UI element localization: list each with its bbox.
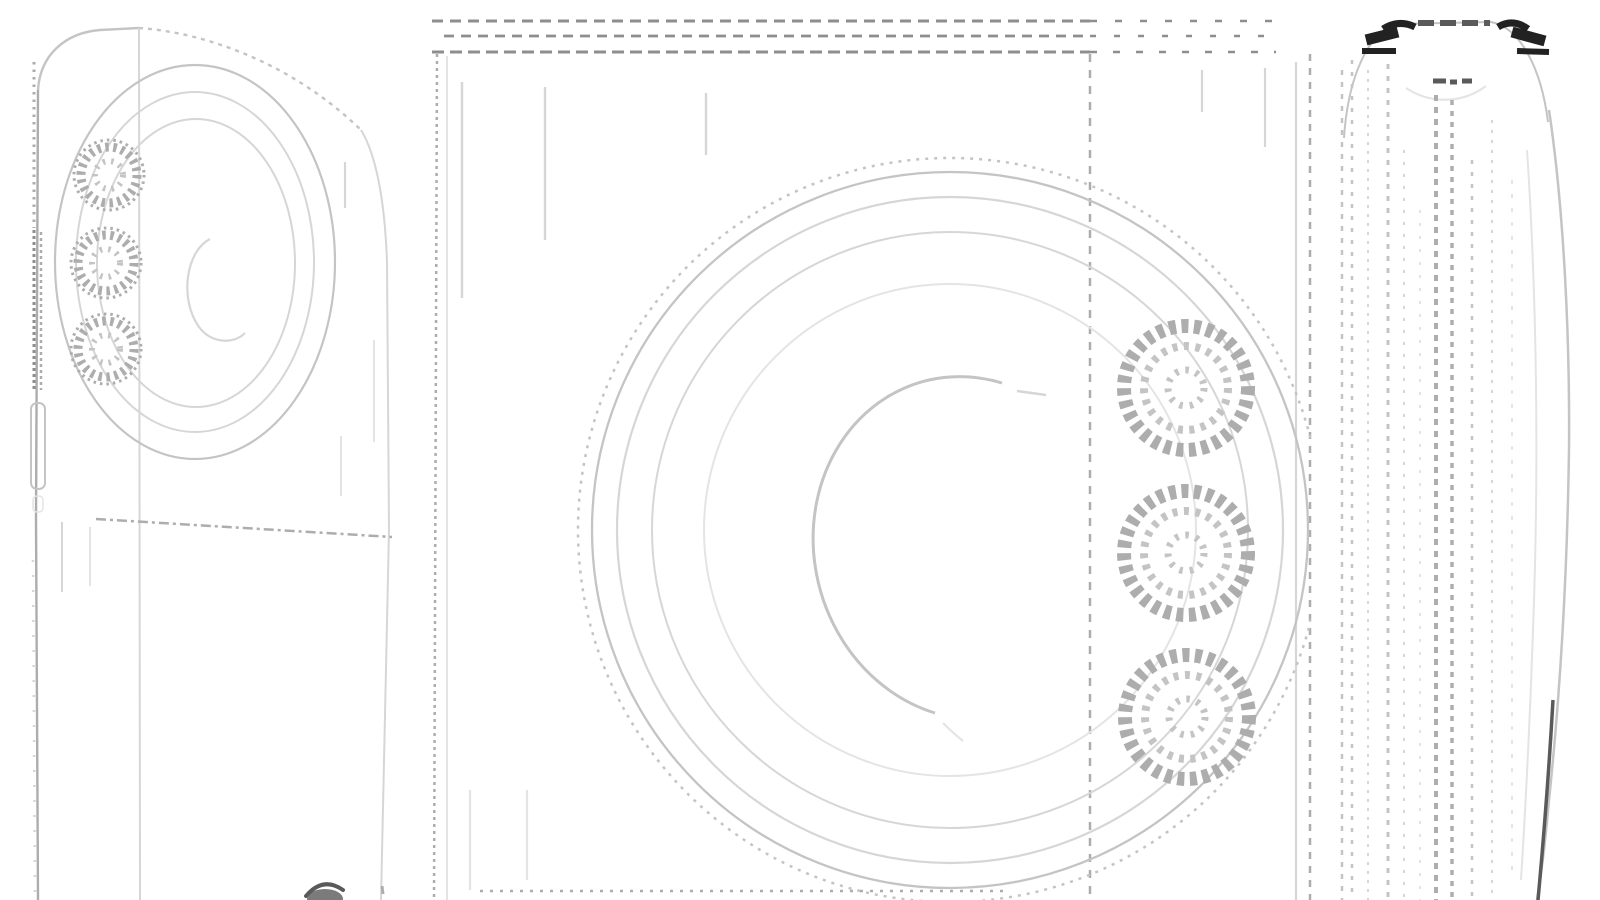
dial-3-middle-ring bbox=[1145, 675, 1229, 759]
edge-tick-bottom bbox=[382, 886, 383, 894]
patent-drawing-canvas bbox=[0, 0, 1600, 900]
panel-edge-left-dotted bbox=[434, 54, 437, 900]
clipped-bottom-figure bbox=[306, 884, 343, 900]
lens-2-knurl-ring bbox=[78, 235, 134, 291]
dial-3-inner-ring bbox=[1169, 699, 1205, 735]
side-button-small bbox=[33, 496, 43, 512]
camera-plate-rings bbox=[55, 65, 335, 459]
side-top-dark-marks bbox=[1362, 23, 1549, 82]
dial-2-middle-ring bbox=[1144, 511, 1228, 595]
inner-c-arc bbox=[813, 377, 1002, 713]
small-dark-dashes bbox=[1433, 81, 1472, 82]
edge-stipple-lower bbox=[33, 560, 35, 898]
inner-c-arc-tail bbox=[943, 723, 963, 741]
knurled-dial-1 bbox=[1124, 326, 1248, 450]
top-dashed-lines bbox=[432, 21, 1276, 52]
figure-side-view bbox=[1342, 22, 1569, 900]
dial-1-middle-ring bbox=[1144, 346, 1228, 430]
body-edge-right bbox=[361, 130, 389, 900]
side-button bbox=[31, 403, 45, 489]
body-edge-left bbox=[36, 90, 38, 900]
figure-perspective-view bbox=[31, 28, 392, 900]
ring-1 bbox=[592, 172, 1308, 888]
corner-dark-bar-left-1 bbox=[1366, 32, 1398, 40]
body-top-dotted-curve bbox=[139, 28, 361, 130]
corner-dark-bar-right-1 bbox=[1512, 32, 1545, 41]
top-dark-hump-left bbox=[1383, 23, 1415, 29]
side-edge-right bbox=[1537, 110, 1569, 900]
knurled-dial-3 bbox=[1125, 655, 1249, 779]
side-edge-right-inner bbox=[1521, 150, 1536, 880]
top-dark-hump-right bbox=[1498, 23, 1528, 29]
camera-plate-hook-arc bbox=[187, 239, 245, 341]
patent-drawing-svg bbox=[0, 0, 1600, 900]
camera-plate-ring-middle bbox=[76, 92, 314, 432]
ring-2 bbox=[617, 197, 1283, 863]
side-texture-lines bbox=[1342, 60, 1512, 900]
body-corner-top-left bbox=[38, 28, 139, 90]
speaker-concentric-rings bbox=[578, 158, 1322, 900]
camera-lens-2 bbox=[71, 228, 141, 298]
figure-back-view bbox=[432, 21, 1322, 900]
inner-c-tick bbox=[1017, 391, 1046, 395]
top-inner-curve bbox=[1406, 86, 1486, 100]
dial-2-inner-ring bbox=[1168, 535, 1204, 571]
dial-1-inner-ring bbox=[1168, 370, 1204, 406]
corner-dark-bar-right-2 bbox=[1517, 51, 1549, 52]
ring-outer-dotted bbox=[578, 158, 1322, 900]
side-edge-right-dark-bottom bbox=[1538, 700, 1553, 900]
lens-1-inner-ring bbox=[95, 161, 123, 189]
ring-3 bbox=[652, 232, 1248, 828]
